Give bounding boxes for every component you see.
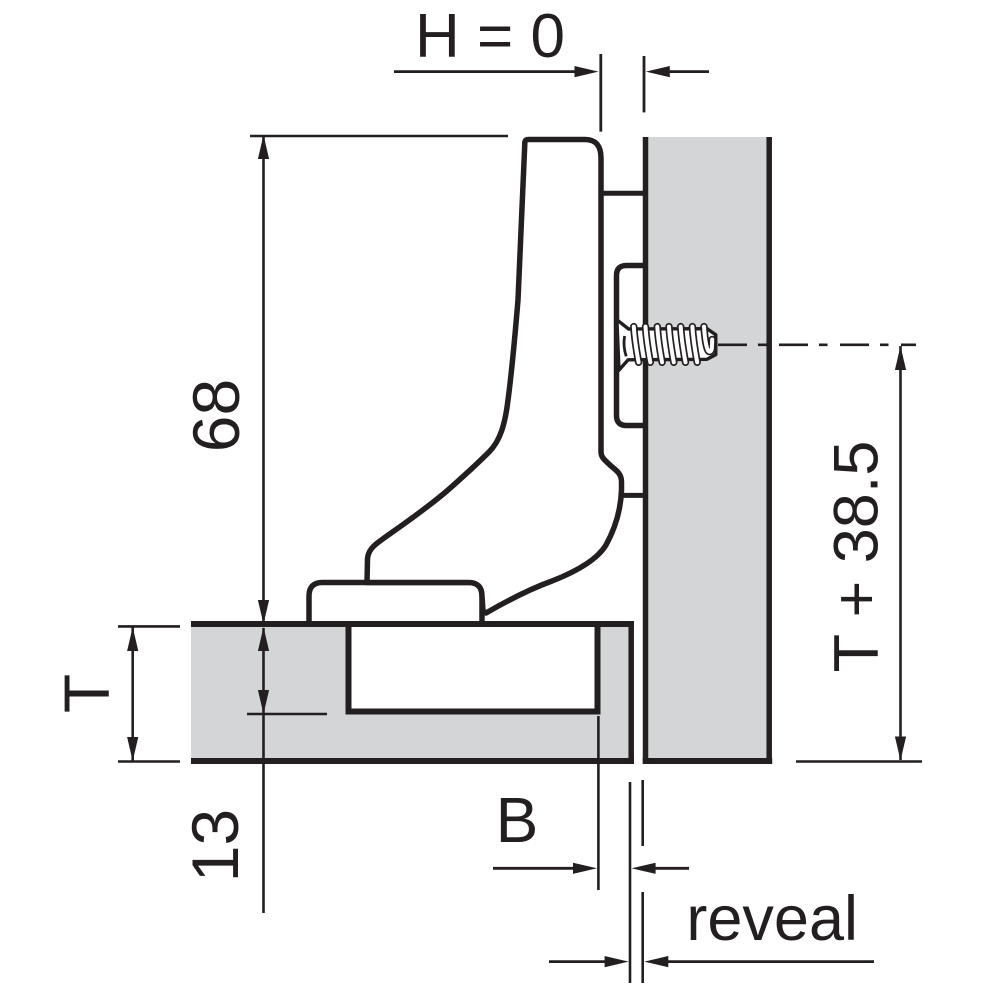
svg-text:T: T — [51, 674, 123, 713]
svg-text:reveal: reveal — [686, 884, 858, 954]
svg-text:H = 0: H = 0 — [415, 2, 565, 71]
svg-text:B: B — [496, 784, 539, 856]
svg-text:68: 68 — [179, 379, 253, 452]
svg-text:13: 13 — [178, 809, 252, 882]
svg-text:T + 38.5: T + 38.5 — [822, 441, 892, 673]
